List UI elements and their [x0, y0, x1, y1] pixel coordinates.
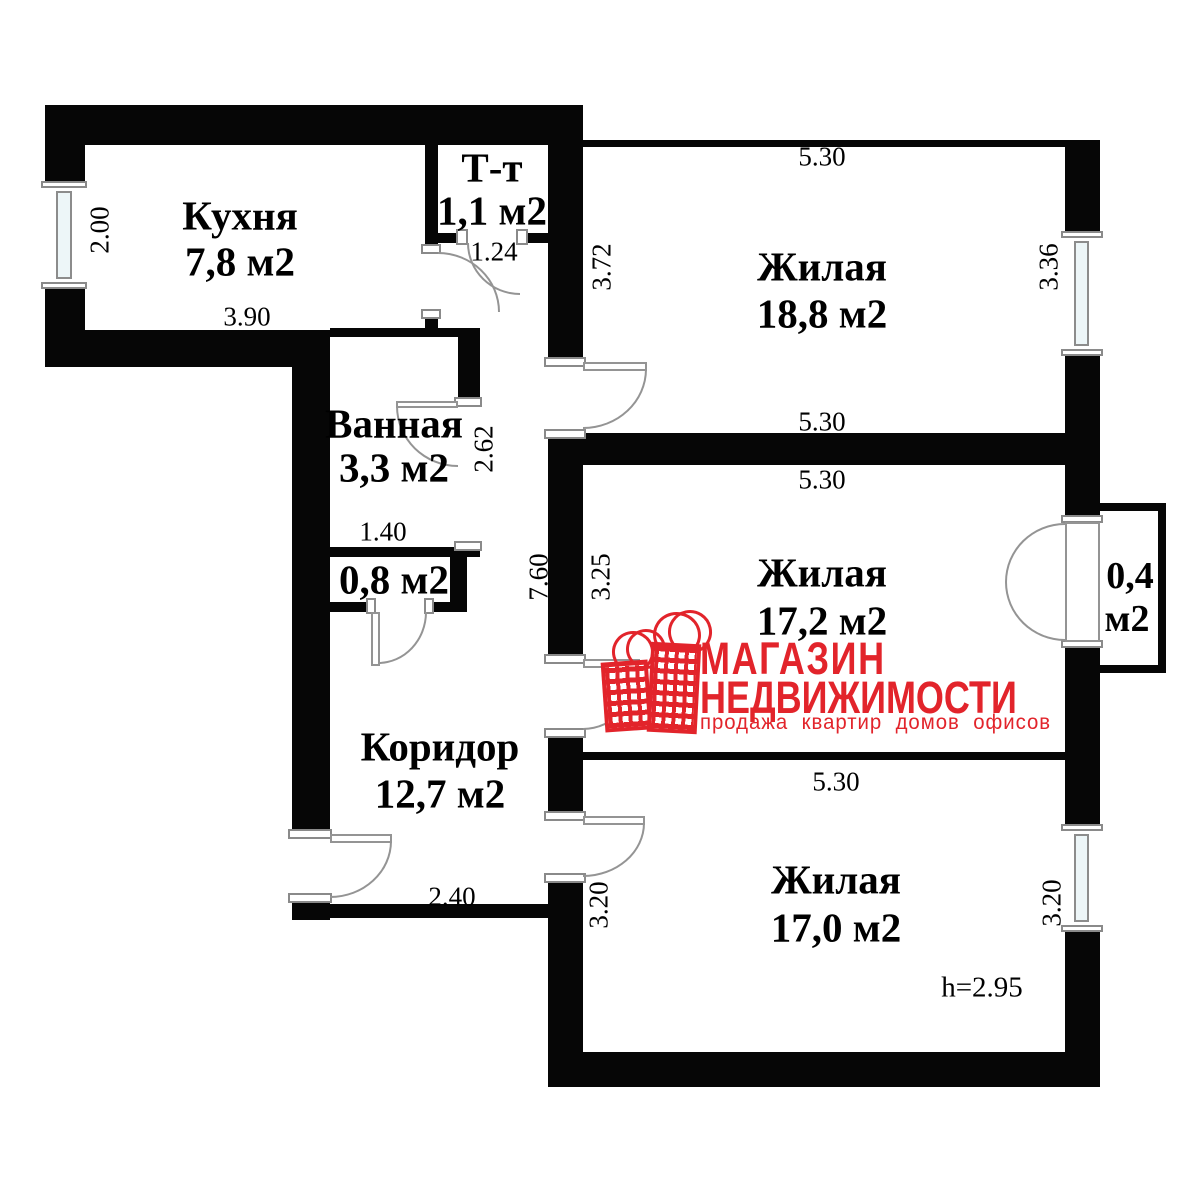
door-jamb: [544, 357, 586, 367]
floor-plan: Кухня 7,8 м2 Т-т 1,1 м2 Ванная 3,3 м2 0,…: [0, 0, 1200, 1200]
dimension-label: 5.30: [798, 467, 845, 494]
door-jamb: [544, 728, 586, 738]
room-area-living-1: 18,8 м2: [757, 294, 887, 335]
wall: [548, 433, 1100, 465]
window-jamb: [1061, 231, 1103, 238]
dimension-label: 3.20: [586, 881, 613, 928]
door-swing-arc: [583, 823, 645, 877]
window-jamb: [1061, 925, 1103, 932]
dimension-label: 1.24: [470, 239, 517, 266]
dimension-label: 1.40: [359, 519, 406, 546]
dimension-label: 3.25: [588, 553, 615, 600]
wall: [548, 1052, 1100, 1087]
wall: [1065, 140, 1100, 235]
door-jamb: [544, 811, 586, 821]
dimension-label: 3.36: [1036, 243, 1063, 290]
dimension-label: 3.72: [589, 243, 616, 290]
door-swing-arc: [378, 612, 427, 664]
room-label-living-3: Жилая: [771, 860, 901, 901]
room-area-bathroom: 3,3 м2: [339, 448, 449, 489]
door-swing-arc: [1005, 582, 1065, 641]
building-windows: [605, 665, 648, 729]
window-glass: [1074, 834, 1089, 922]
door-jamb: [544, 873, 586, 883]
room-area-toilet: 1,1 м2: [437, 191, 547, 232]
room-area-balcony: м2: [1105, 600, 1150, 638]
dimension-label: 2.62: [471, 425, 498, 472]
door-jamb: [544, 429, 586, 439]
wall: [330, 328, 480, 337]
building-bag-icon: [647, 642, 702, 734]
window-glass: [1074, 241, 1089, 346]
room-label-balcony: 0,4: [1106, 557, 1154, 595]
building-bag-icon: [601, 659, 653, 732]
room-label-kitchen: Кухня: [182, 196, 298, 237]
wall: [458, 337, 480, 405]
door-swing-arc: [583, 369, 647, 429]
room-area-kitchen: 7,8 м2: [185, 242, 295, 283]
wall: [548, 732, 583, 819]
wall: [583, 752, 1065, 760]
room-area-living-3: 17,0 м2: [771, 908, 901, 949]
dimension-label: 5.30: [798, 409, 845, 436]
door-swing-arc: [330, 841, 392, 898]
dimension-label: 3.20: [1039, 879, 1066, 926]
door-jamb: [288, 829, 332, 839]
dimension-label: 2.40: [428, 884, 475, 911]
room-label-living-2: Жилая: [757, 553, 887, 594]
ceiling-height-note: h=2.95: [941, 972, 1023, 1005]
door-swing-arc: [1005, 523, 1065, 582]
door-jamb: [454, 541, 482, 551]
room-area-corridor: 12,7 м2: [375, 774, 505, 815]
dimension-label: 7.60: [526, 553, 553, 600]
door-jamb: [544, 654, 586, 664]
window-jamb: [41, 282, 87, 289]
dimension-label: 2.00: [87, 206, 114, 253]
building-windows: [651, 647, 697, 730]
wall: [548, 433, 583, 662]
window-jamb: [1061, 824, 1103, 831]
balcony-wall: [1100, 665, 1166, 673]
window-jamb: [1061, 349, 1103, 356]
room-label-bathroom: Ванная: [325, 404, 463, 445]
balcony-wall: [1158, 503, 1166, 673]
window-glass: [56, 191, 72, 279]
wall: [45, 330, 330, 367]
balcony-wall: [1100, 503, 1166, 511]
door-jamb: [288, 893, 332, 903]
wall: [548, 105, 583, 365]
window-jamb: [41, 181, 87, 188]
balcony-door-leaf: [1065, 522, 1100, 642]
room-area-closet: 0,8 м2: [339, 560, 449, 601]
wall: [45, 105, 583, 145]
logo-tagline: продажа квартир домов офисов: [700, 712, 1051, 733]
room-label-corridor: Коридор: [361, 727, 520, 768]
room-label-toilet: Т-т: [461, 148, 522, 189]
dimension-label: 3.90: [223, 304, 270, 331]
dimension-label: 5.30: [812, 769, 859, 796]
dimension-label: 5.30: [798, 144, 845, 171]
wall: [45, 105, 85, 190]
room-label-living-1: Жилая: [757, 247, 887, 288]
